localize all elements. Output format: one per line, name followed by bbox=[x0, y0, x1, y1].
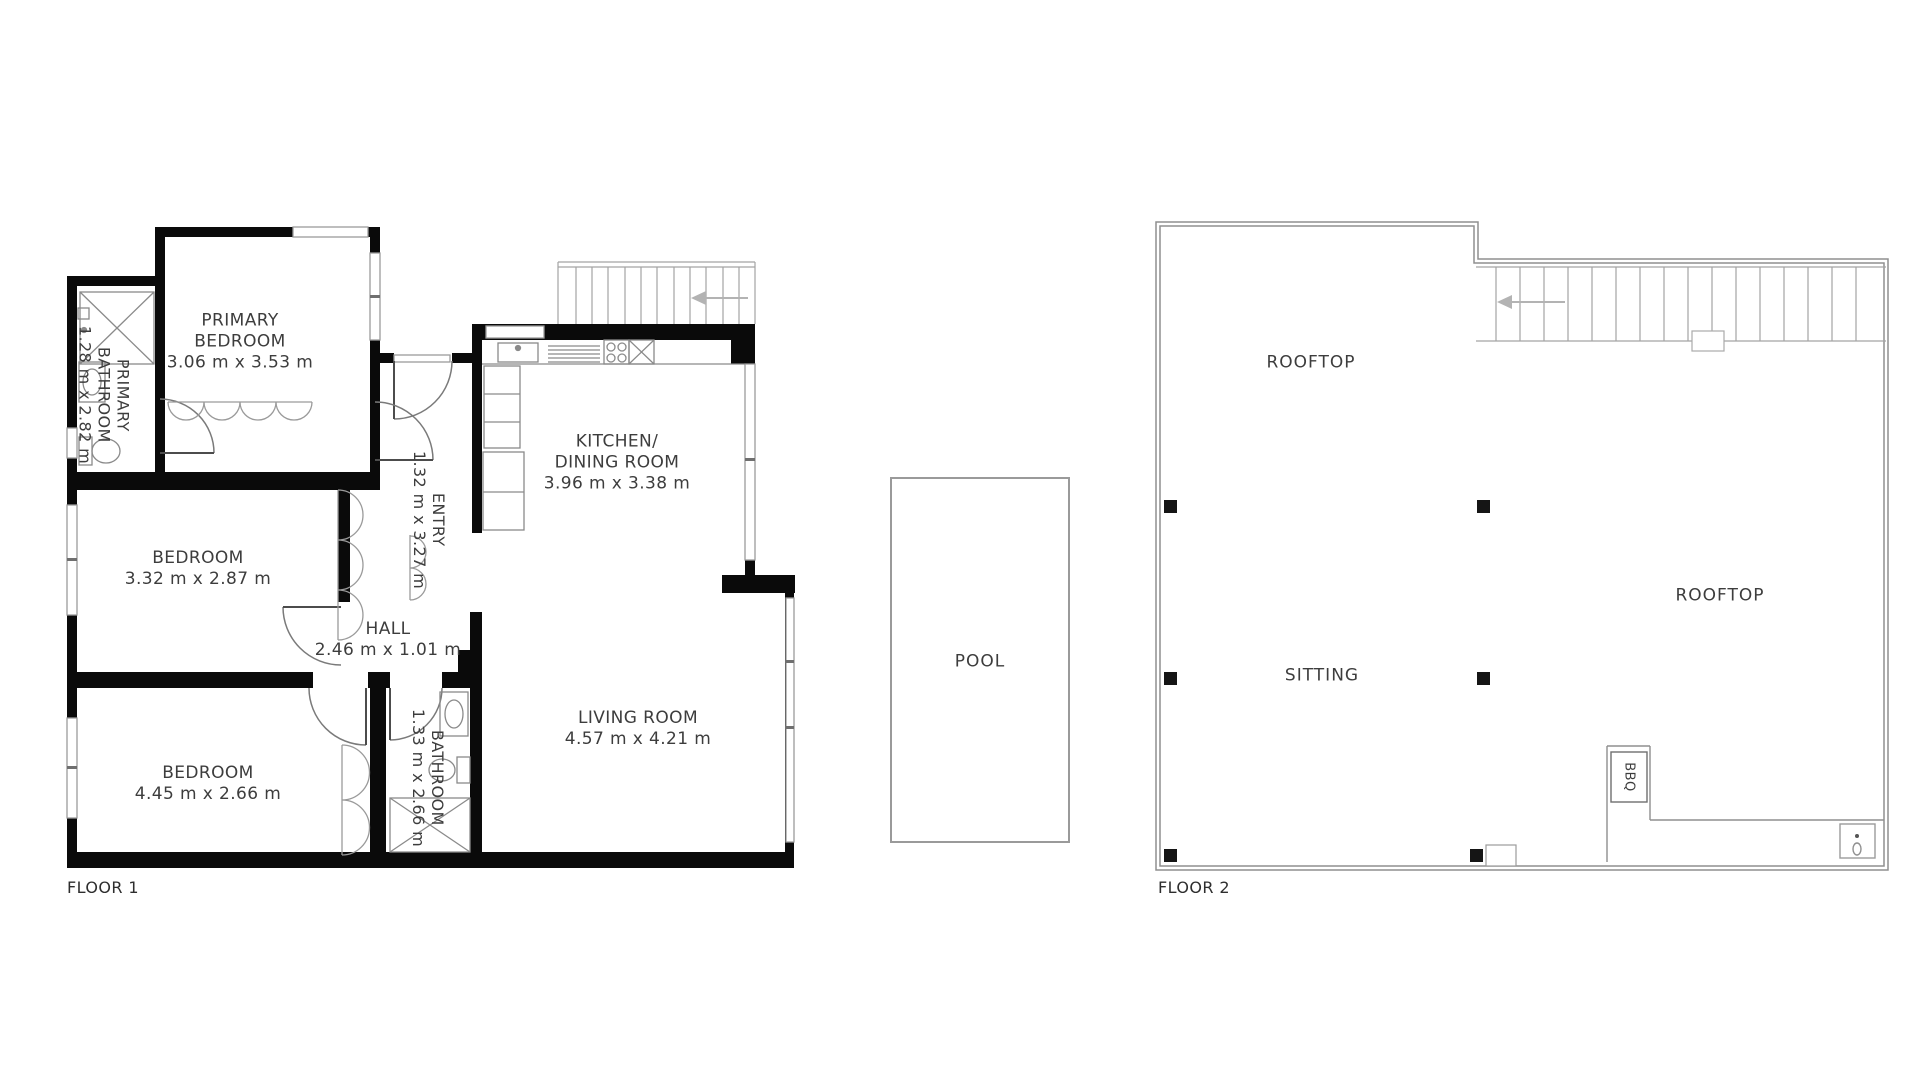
room-label-bedroom-middle: BEDROOM 3.32 m x 2.87 m bbox=[125, 548, 272, 590]
bottom-bedroom-door-icon bbox=[309, 688, 366, 745]
area-label-rooftop-right: ROOFTOP bbox=[1675, 586, 1764, 607]
entry-front-door-icon bbox=[394, 361, 452, 419]
room-name: LIVING ROOM bbox=[565, 708, 712, 729]
room-name: BEDROOM bbox=[135, 763, 282, 784]
room-dims: 1.32 m x 3.27 m bbox=[410, 451, 429, 589]
room-dims: 3.32 m x 2.87 m bbox=[125, 569, 272, 590]
room-dims: 3.06 m x 3.53 m bbox=[167, 353, 314, 374]
stove-icon bbox=[604, 340, 629, 364]
room-name: DINING ROOM bbox=[544, 453, 691, 474]
kitchen-sink-icon bbox=[498, 343, 600, 362]
outdoor-sink-icon bbox=[1840, 824, 1875, 858]
room-name: BATHROOM bbox=[428, 709, 447, 847]
room-name: BEDROOM bbox=[167, 332, 314, 353]
floorplan-page: PRIMARY BEDROOM 3.06 m x 3.53 m PRIMARY … bbox=[0, 0, 1920, 1080]
room-dims: 1.28 m x 2.82 m bbox=[76, 326, 95, 464]
bottom-bedroom-closet-icon bbox=[342, 745, 370, 855]
room-dims: 2.46 m x 1.01 m bbox=[315, 640, 462, 661]
bbq-label: BBQ bbox=[1620, 762, 1639, 792]
room-label-living-room: LIVING ROOM 4.57 m x 4.21 m bbox=[565, 708, 712, 750]
area-label-rooftop-top: ROOFTOP bbox=[1266, 353, 1355, 374]
stairs-down-arrow-icon bbox=[1497, 295, 1565, 309]
room-name: PRIMARY bbox=[167, 311, 314, 332]
room-name: BATHROOM bbox=[95, 326, 114, 464]
floor1-title: FLOOR 1 bbox=[67, 878, 139, 897]
room-label-primary-bedroom: PRIMARY BEDROOM 3.06 m x 3.53 m bbox=[167, 311, 314, 374]
room-label-primary-bathroom: PRIMARY BATHROOM 1.28 m x 2.82 m bbox=[76, 326, 133, 464]
room-name: HALL bbox=[315, 619, 462, 640]
stair-landing-marker bbox=[1692, 331, 1724, 351]
room-label-hall: HALL 2.46 m x 1.01 m bbox=[315, 619, 462, 661]
room-dims: 4.57 m x 4.21 m bbox=[565, 729, 712, 750]
floor1-stairs-icon bbox=[558, 262, 755, 324]
floorplan-drawing bbox=[0, 0, 1920, 1080]
room-name: PRIMARY bbox=[114, 326, 133, 464]
room-label-bedroom-bottom: BEDROOM 4.45 m x 2.66 m bbox=[135, 763, 282, 805]
primary-bedroom-closet-icon bbox=[168, 402, 312, 420]
fridge-icon bbox=[483, 452, 524, 530]
room-dims: 4.45 m x 2.66 m bbox=[135, 784, 282, 805]
floor2-walls bbox=[1158, 224, 1886, 868]
bbq-counter bbox=[1607, 746, 1884, 862]
room-name: KITCHEN/ bbox=[544, 432, 691, 453]
area-label-sitting: SITTING bbox=[1285, 666, 1359, 687]
room-dims: 3.96 m x 3.38 m bbox=[544, 474, 691, 495]
floor2-wall-opening bbox=[1486, 845, 1516, 866]
pool-label: POOL bbox=[955, 652, 1005, 673]
room-dims: 1.33 m x 2.66 m bbox=[409, 709, 428, 847]
room-label-entry: ENTRY 1.32 m x 3.27 m bbox=[410, 451, 448, 589]
room-name: ENTRY bbox=[429, 451, 448, 589]
floor2-stairs-icon bbox=[1476, 267, 1886, 351]
kitchen-counter-icon bbox=[484, 366, 520, 448]
oven-icon bbox=[629, 340, 654, 364]
floor2-title: FLOOR 2 bbox=[1158, 878, 1230, 897]
room-name: BEDROOM bbox=[125, 548, 272, 569]
room-label-kitchen-dining: KITCHEN/ DINING ROOM 3.96 m x 3.38 m bbox=[544, 432, 691, 495]
room-label-bathroom: BATHROOM 1.33 m x 2.66 m bbox=[409, 709, 447, 847]
